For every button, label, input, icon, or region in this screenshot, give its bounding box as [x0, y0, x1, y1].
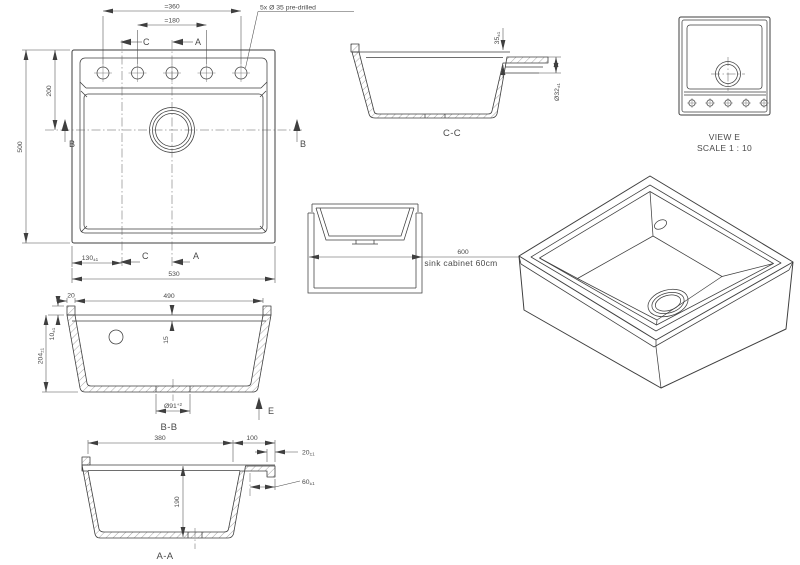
section-aa-view: 380 100 20±1 60±1 190 A-A [82, 435, 315, 562]
dim-width: 530 [168, 271, 180, 278]
plan-view: =360 =180 5x Ø 35 pre-drilled 500 200 B … [17, 4, 354, 284]
iso-bowl-opening [540, 192, 774, 326]
section-label-a: A [195, 37, 201, 47]
section-label-c: C [143, 37, 150, 47]
section-arrow-b-left: B [62, 119, 76, 149]
bb-wall-band [67, 315, 271, 392]
view-arrow-e: E [256, 397, 275, 420]
dim-cabinet-width: 600 [457, 249, 469, 256]
dim-bb-depth: 204±1 [38, 347, 45, 364]
view-e-label: VIEW E [709, 132, 741, 142]
section-bb-label: B-B [160, 422, 177, 433]
dim-bb-rim: 15 [163, 336, 170, 344]
section-arrow-b-right: B [294, 119, 307, 149]
dim-aa-ledge-depth: 60±1 [302, 479, 315, 486]
iso-overflow-hole [653, 218, 668, 232]
view-e-drain [711, 57, 745, 91]
section-cc-label: C-C [443, 128, 461, 139]
view-e-holes [687, 98, 769, 108]
iso-bowl-bottom [578, 236, 723, 320]
bb-left-lip [67, 306, 75, 315]
dim-holes-inner: =180 [164, 18, 180, 25]
isometric-view [519, 176, 793, 388]
dim-bb-inner-width: 490 [163, 293, 175, 300]
dim-aa-ledge-width: 20±1 [302, 450, 315, 457]
section-arrow-a-bottom: A [172, 251, 199, 265]
dim-aa-right-ext: 100 [246, 435, 258, 442]
section-label-b: B [69, 139, 75, 149]
view-e-scale: SCALE 1 : 10 [697, 143, 752, 153]
dim-rim-to-ledge: 35±1 [494, 31, 501, 44]
bb-overflow-hole [109, 330, 123, 344]
dim-overflow: Ø32±1 [554, 83, 561, 101]
section-bb-view: 20 490 10±1 204±1 15 Ø91+2 E B-B [38, 293, 275, 434]
section-aa-label: A-A [156, 551, 173, 562]
section-label-b: B [300, 139, 306, 149]
cc-left-lip [351, 44, 359, 52]
cc-wall-band [352, 52, 548, 118]
iso-rim-inner [531, 185, 781, 331]
view-e: VIEW E SCALE 1 : 10 [679, 17, 770, 153]
dim-top-to-centre: 200 [46, 85, 53, 97]
dim-bb-drain: Ø91+2 [164, 402, 183, 410]
cabinet-sink [312, 204, 418, 244]
aa-left-lip [82, 457, 90, 465]
section-cc-view: 35±1 Ø32±1 C-C [351, 28, 561, 139]
dim-left-to-c: 130±1 [82, 255, 99, 262]
cabinet-view: 600 sink cabinet 60cm [308, 204, 520, 293]
dim-bb-lip-height: 10±1 [49, 327, 56, 340]
dim-bb-lip: 20 [67, 293, 75, 300]
drawing-canvas: =360 =180 5x Ø 35 pre-drilled 500 200 B … [0, 0, 800, 565]
bb-right-lip [263, 306, 271, 315]
section-arrow-a-top: A [172, 37, 201, 47]
cabinet-note: sink cabinet 60cm [424, 258, 497, 268]
dim-holes-span: =360 [164, 4, 180, 11]
note-predrilled: 5x Ø 35 pre-drilled [260, 5, 316, 12]
dim-height: 500 [17, 141, 24, 153]
iso-body [519, 176, 793, 388]
section-arrow-c-bottom: C [120, 251, 149, 265]
view-e-arrow-label: E [268, 406, 274, 416]
section-arrow-c-top: C [120, 37, 150, 47]
section-label-c: C [142, 251, 149, 261]
section-label-a: A [193, 251, 199, 261]
technical-drawing-sheet: =360 =180 5x Ø 35 pre-drilled 500 200 B … [0, 0, 800, 565]
dim-aa-inner-width: 380 [154, 435, 166, 442]
dim-aa-depth: 190 [174, 496, 181, 508]
